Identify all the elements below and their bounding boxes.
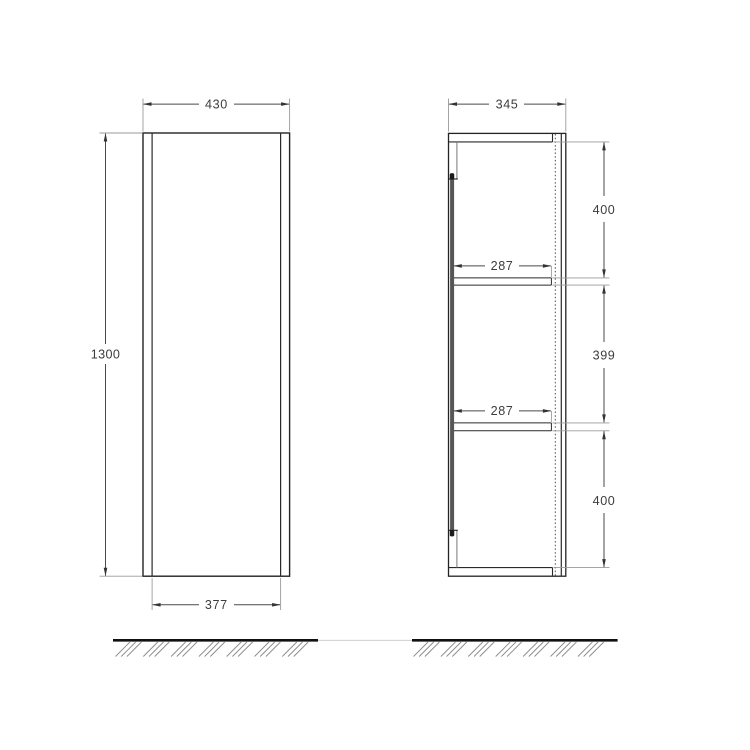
svg-text:377: 377 xyxy=(205,598,228,612)
svg-text:399: 399 xyxy=(593,348,616,362)
svg-text:287: 287 xyxy=(491,259,514,273)
svg-text:345: 345 xyxy=(496,97,519,111)
svg-text:400: 400 xyxy=(593,494,616,508)
svg-text:400: 400 xyxy=(593,203,616,217)
svg-text:287: 287 xyxy=(491,404,514,418)
svg-text:1300: 1300 xyxy=(91,347,121,361)
svg-text:430: 430 xyxy=(205,97,228,111)
